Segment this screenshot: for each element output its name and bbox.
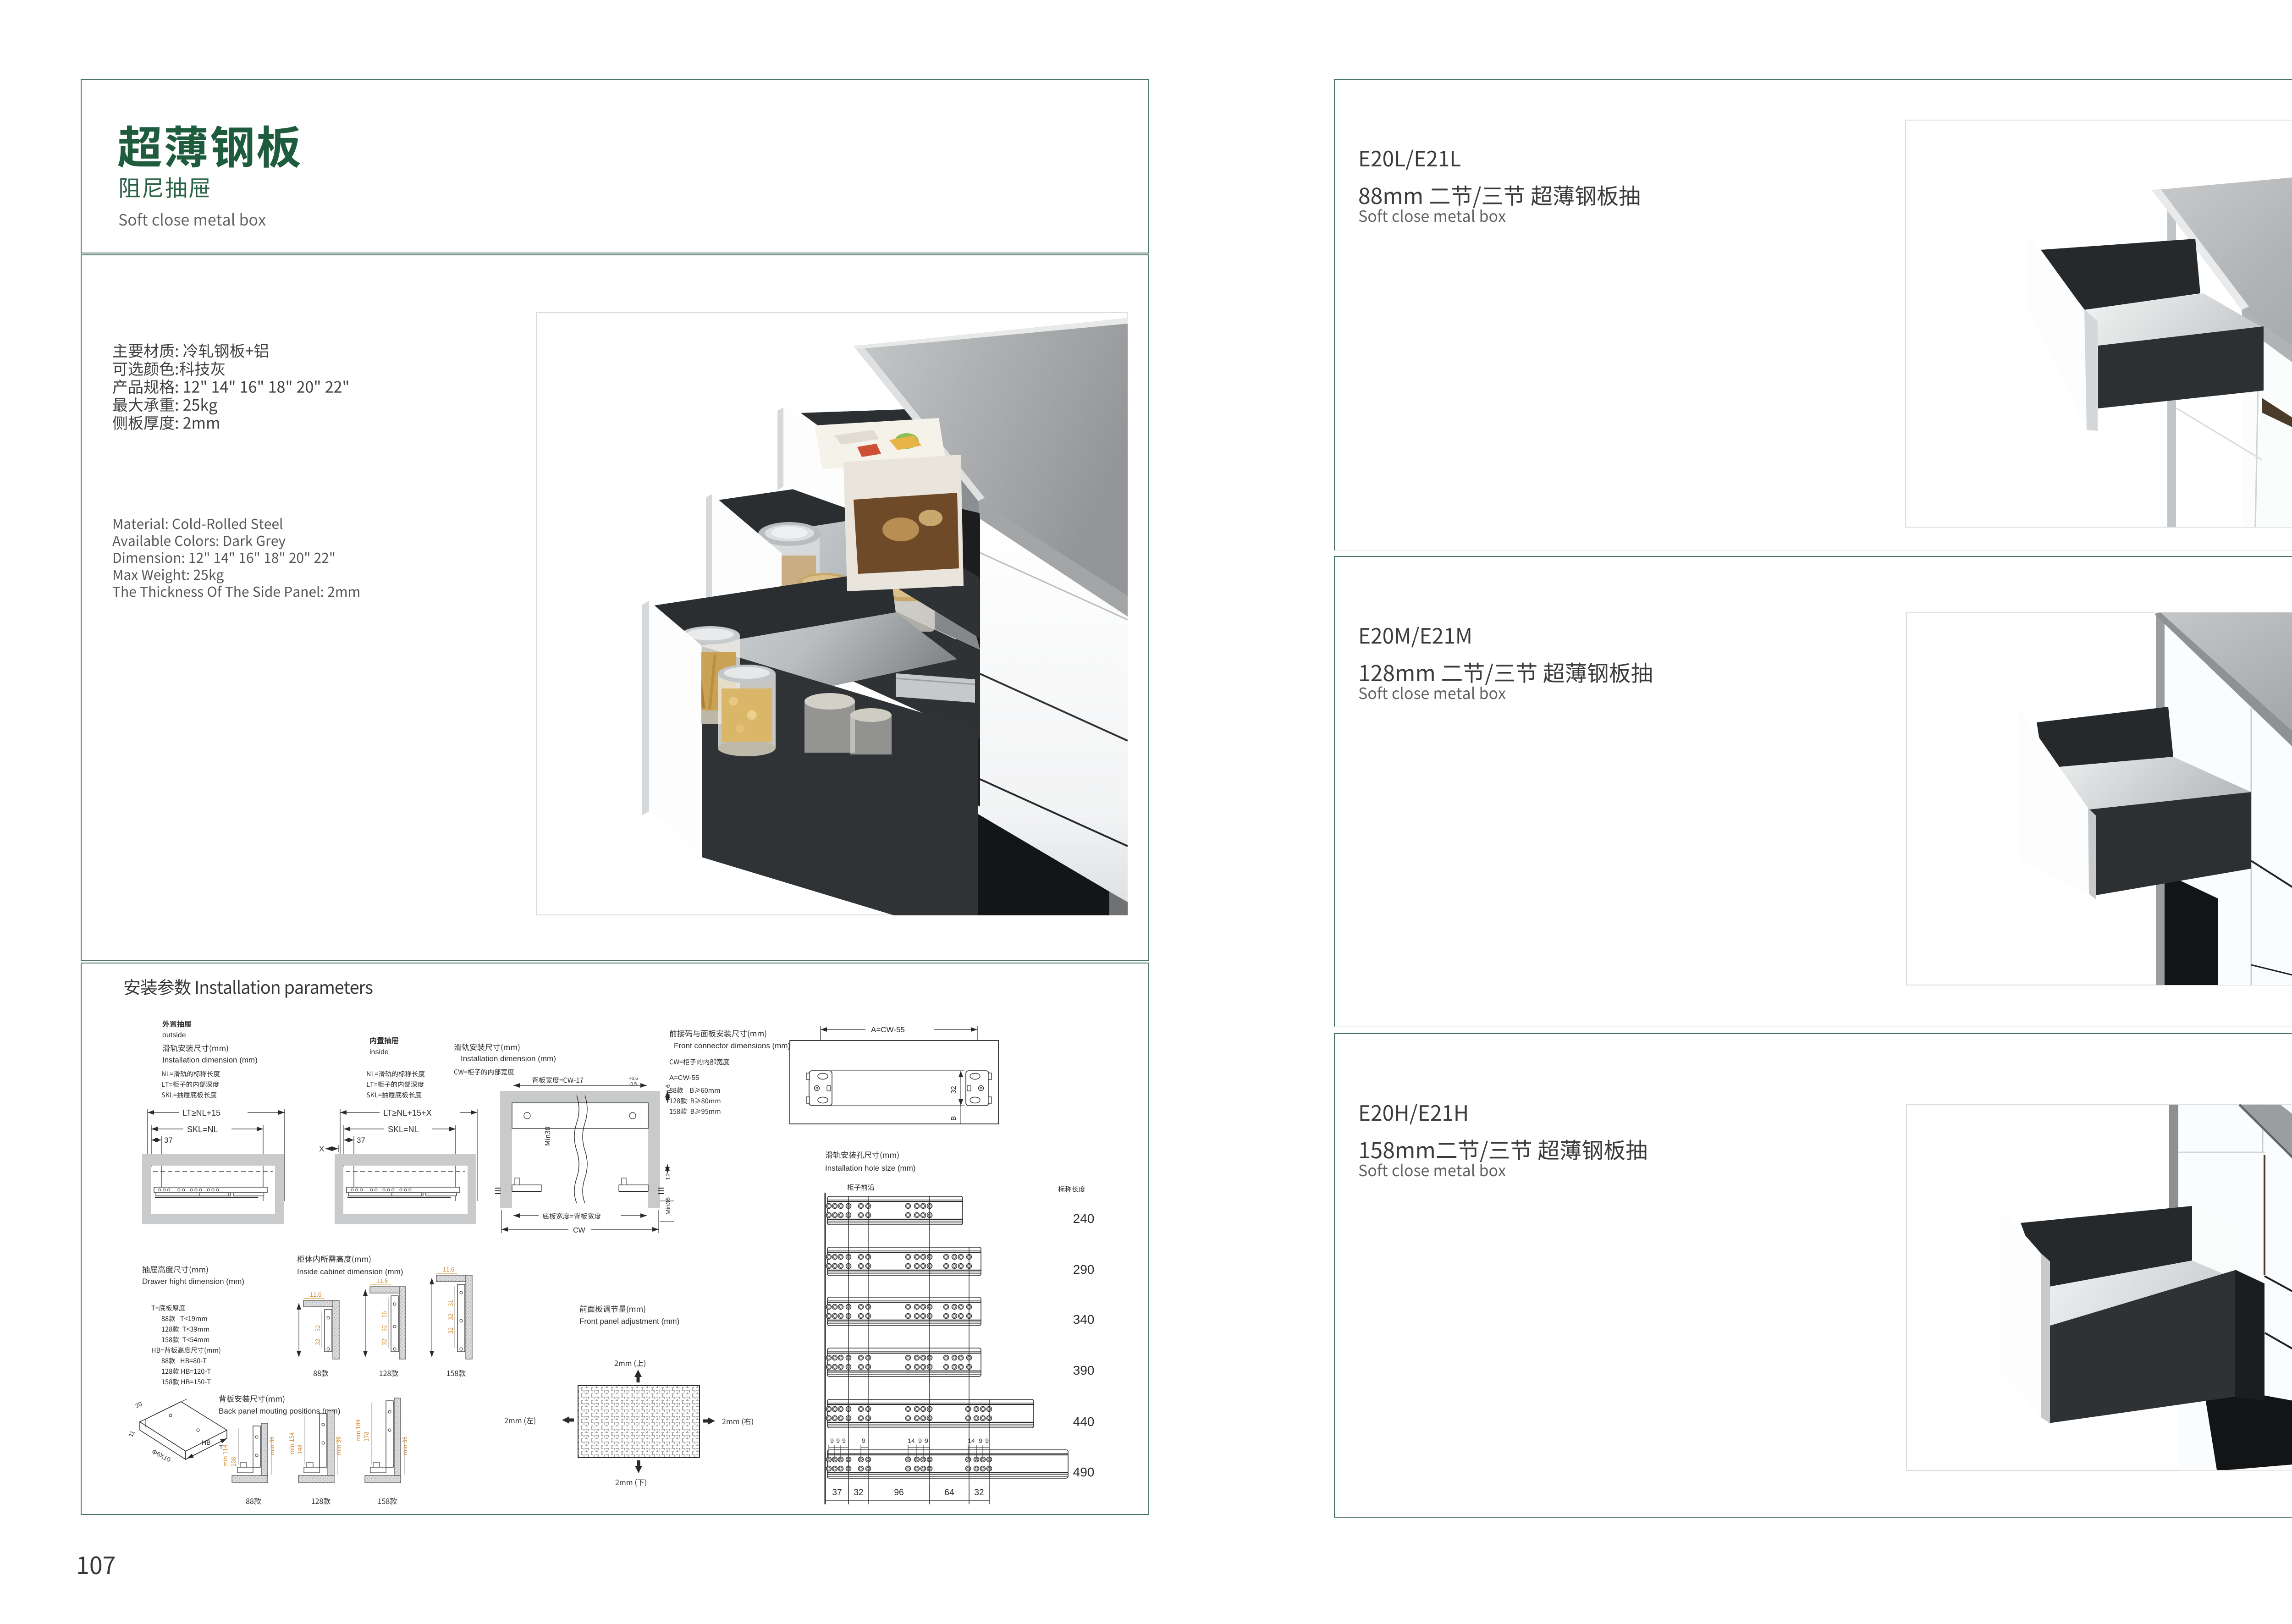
svg-text:32: 32 — [974, 1488, 984, 1497]
svg-text:B: B — [950, 1116, 958, 1121]
svg-text:CW: CW — [573, 1227, 586, 1234]
svg-text:Min36: Min36 — [664, 1197, 672, 1215]
svg-text:Inside cabinet dimension (mm): Inside cabinet dimension (mm) — [297, 1267, 403, 1276]
svg-text:SKL=NL: SKL=NL — [388, 1125, 419, 1134]
svg-text:Installation hole size (mm): Installation hole size (mm) — [825, 1164, 915, 1173]
svg-text:12: 12 — [664, 1173, 672, 1180]
svg-text:9: 9 — [925, 1437, 928, 1444]
svg-text:32: 32 — [950, 1086, 958, 1094]
svg-text:inside: inside — [369, 1048, 389, 1056]
svg-text:11: 11 — [127, 1429, 136, 1438]
svg-text:32: 32 — [854, 1488, 863, 1497]
svg-text:20: 20 — [134, 1400, 143, 1409]
svg-text:LT≥NL+15: LT≥NL+15 — [182, 1108, 220, 1118]
svg-text:-0.5: -0.5 — [629, 1082, 637, 1087]
svg-text:Installation dimension (mm): Installation dimension (mm) — [461, 1054, 556, 1063]
svg-text:T: T — [219, 1443, 223, 1451]
svg-text:340: 340 — [1073, 1312, 1095, 1327]
svg-text:14: 14 — [968, 1437, 975, 1444]
svg-text:Φ6X10: Φ6X10 — [151, 1448, 172, 1463]
svg-text:Front connector dimensions (m: Front connector dimensions (mm) — [674, 1041, 790, 1050]
svg-text:37: 37 — [357, 1136, 365, 1145]
svg-text:14: 14 — [908, 1437, 915, 1444]
svg-text:HB: HB — [202, 1439, 210, 1446]
svg-text:LT≥NL+15+X: LT≥NL+15+X — [383, 1108, 432, 1118]
svg-text:390: 390 — [1073, 1363, 1095, 1377]
svg-text:490: 490 — [1073, 1465, 1095, 1479]
svg-text:96: 96 — [894, 1488, 904, 1497]
svg-text:9: 9 — [979, 1437, 982, 1444]
svg-text:9: 9 — [842, 1437, 846, 1444]
svg-text:9: 9 — [862, 1437, 865, 1444]
svg-text:A=CW-55: A=CW-55 — [669, 1074, 699, 1082]
svg-text:9: 9 — [918, 1437, 922, 1444]
svg-text:37: 37 — [164, 1136, 173, 1145]
svg-text:outside: outside — [162, 1031, 186, 1039]
svg-text:+0.5: +0.5 — [629, 1076, 638, 1081]
svg-text:9: 9 — [836, 1437, 840, 1444]
svg-text:Front panel adjustment (mm): Front panel adjustment (mm) — [579, 1317, 679, 1326]
svg-text:64: 64 — [944, 1488, 954, 1497]
svg-text:SKL=NL: SKL=NL — [187, 1125, 218, 1134]
svg-text:9: 9 — [830, 1437, 834, 1444]
svg-text:9: 9 — [985, 1437, 989, 1444]
svg-text:37: 37 — [832, 1488, 842, 1497]
svg-text:440: 440 — [1073, 1415, 1095, 1429]
svg-text:240: 240 — [1073, 1211, 1095, 1226]
svg-text:290: 290 — [1073, 1262, 1095, 1277]
svg-text:X: X — [319, 1145, 324, 1153]
svg-text:Installation dimension (mm): Installation dimension (mm) — [162, 1056, 258, 1064]
svg-text:A=CW-55: A=CW-55 — [871, 1025, 905, 1034]
svg-text:Drawer hight dimension (mm): Drawer hight dimension (mm) — [142, 1277, 244, 1286]
